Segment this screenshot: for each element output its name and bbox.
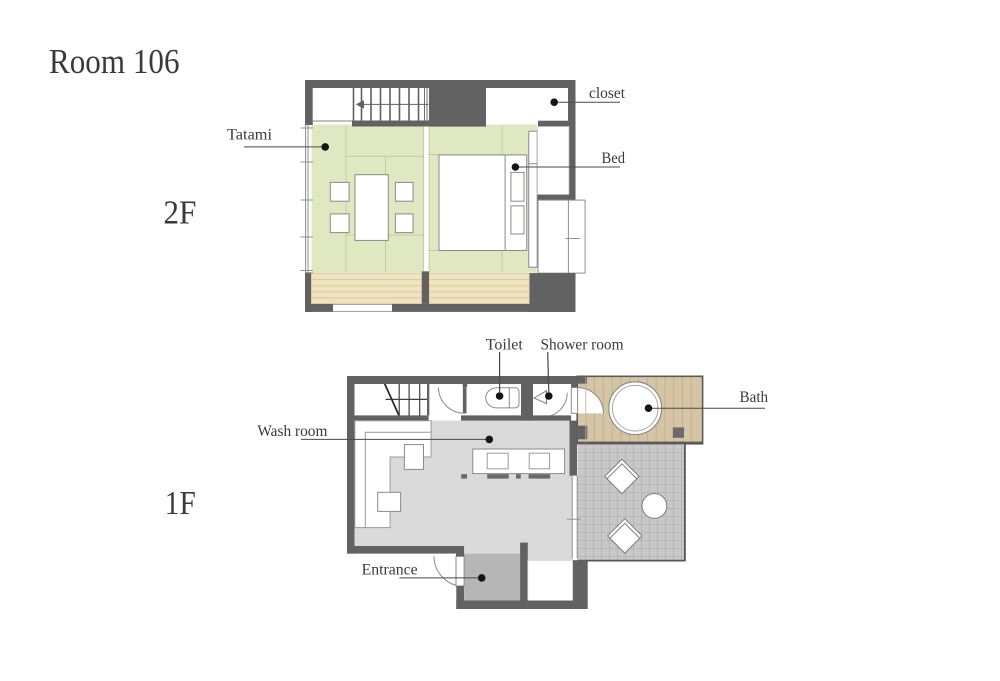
svg-text:Entrance: Entrance [362,561,418,578]
svg-text:Toilet: Toilet [486,337,524,354]
svg-text:Bed: Bed [602,150,626,167]
svg-text:Wash room: Wash room [257,423,328,440]
svg-text:closet: closet [589,85,626,102]
svg-text:1F: 1F [165,485,196,522]
svg-text:2F: 2F [163,194,196,231]
svg-text:Room 106: Room 106 [49,42,180,81]
svg-text:Bath: Bath [740,389,769,406]
svg-text:Shower room: Shower room [541,337,625,354]
svg-text:Tatami: Tatami [227,127,273,144]
